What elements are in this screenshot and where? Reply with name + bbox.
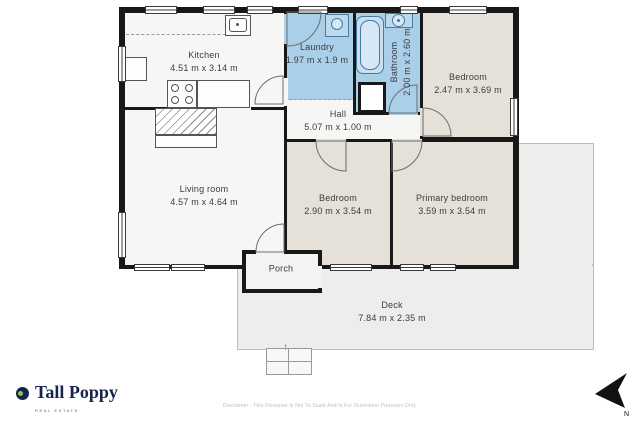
tall-poppy-logo: Tall Poppy REAL ESTATE [16,383,118,420]
room-name: Bedroom [304,192,372,205]
logo-poppy-icon [16,387,29,400]
room-dims: 2.47 m x 3.69 m [434,84,502,97]
room-dims: 2.90 m x 3.54 m [304,205,372,218]
floorplan-page: ↑ Kitchen 4.51 m x [0,0,639,426]
room-dims: 7.84 m x 2.35 m [358,312,426,325]
room-label-laundry: Laundry 1.97 m x 1.9 m [286,41,348,67]
room-dims: 5.07 m x 1.00 m [304,121,372,134]
room-label-porch: Porch [269,263,294,276]
room-name: Porch [269,263,294,276]
room-name: Hall [304,108,372,121]
room-name: Bedroom [434,71,502,84]
room-label-bedroom-top: Bedroom 2.47 m x 3.69 m [434,71,502,97]
room-dims: 1.97 m x 1.9 m [286,54,348,67]
door-arc [256,224,284,252]
compass-label: N [624,411,629,418]
room-name: Laundry [286,41,348,54]
logo-wordmark: Tall Poppy [35,382,118,402]
room-label-primary: Primary bedroom 3.59 m x 3.54 m [416,192,488,218]
room-name: Deck [358,299,426,312]
room-dims: 4.57 m x 4.64 m [170,196,238,209]
north-compass: N [592,370,634,420]
door-arc [255,76,283,104]
disclaimer-text: Disclaimer - This Floorplan Is Not To Sc… [223,403,416,409]
logo-text: Tall Poppy REAL ESTATE [35,383,118,420]
room-label-bathroom: Bathroom 2.00 m x 2.60 m [388,28,414,96]
room-name: Kitchen [170,49,238,62]
room-label-hall: Hall 5.07 m x 1.00 m [304,108,372,134]
room-name: Primary bedroom [416,192,488,205]
room-name: Bathroom [388,28,401,96]
door-arc [392,141,422,171]
room-label-kitchen: Kitchen 4.51 m x 3.14 m [170,49,238,75]
room-dims: 2.00 m x 2.60 m [401,28,414,96]
room-dims: 3.59 m x 3.54 m [416,205,488,218]
logo-subtext: REAL ESTATE [35,402,118,420]
door-arc [423,108,451,136]
room-label-living: Living room 4.57 m x 4.64 m [170,183,238,209]
door-arc [316,141,346,171]
north-arrow-icon: N [592,370,634,420]
room-label-bedroom-mid: Bedroom 2.90 m x 3.54 m [304,192,372,218]
room-dims: 4.51 m x 3.14 m [170,62,238,75]
room-name: Living room [170,183,238,196]
room-label-deck: Deck 7.84 m x 2.35 m [358,299,426,325]
